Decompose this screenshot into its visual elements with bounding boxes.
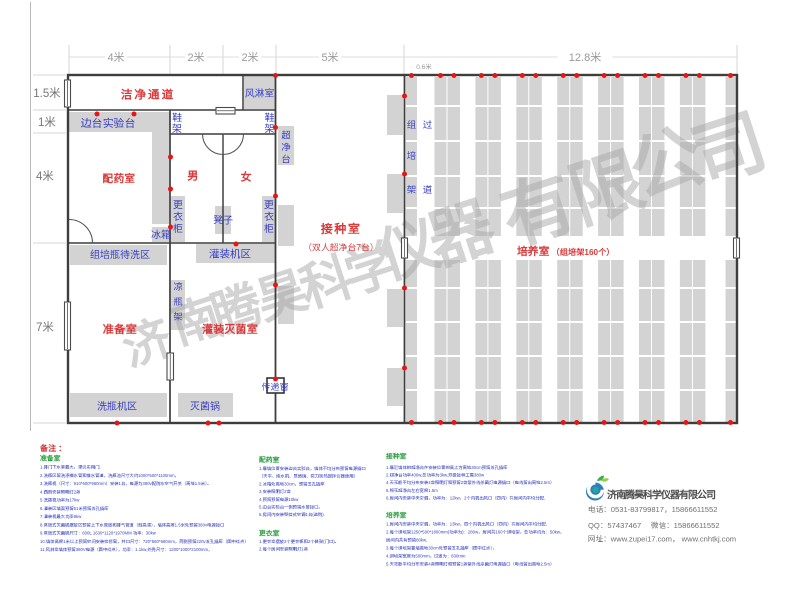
svg-text:架: 架 bbox=[265, 120, 275, 135]
svg-text:柜: 柜 bbox=[264, 220, 275, 235]
svg-text:4米: 4米 bbox=[107, 49, 124, 65]
svg-text:接种室: 接种室 bbox=[385, 451, 407, 461]
svg-text:4.天花板平均分布安装4盏照明灯和预留2盏紫外线杀菌灯电源插: 4.天花板平均分布安装4盏照明灯和预留2盏紫外线杀菌灯电源插口（电线留出离地2.… bbox=[386, 479, 554, 486]
svg-text:3.洗瓶机（尺寸：910*600*960mm）安装1台，电源: 3.洗瓶机（尺寸：910*600*960mm）安装1台，电源为380v配防水空气… bbox=[40, 481, 211, 487]
svg-text:2.每个房间安装照明灯1盏: 2.每个房间安装照明灯1盏 bbox=[259, 546, 309, 553]
svg-text:6.房间内安装壁挂式空调1台(选购).: 6.房间内安装壁挂式空调1台(选购). bbox=[259, 512, 325, 518]
svg-text:3.安装照明灯2盏: 3.安装照明灯2盏 bbox=[259, 488, 291, 495]
svg-text:柜: 柜 bbox=[173, 220, 184, 235]
svg-text:组: 组 bbox=[407, 117, 417, 131]
svg-text:培: 培 bbox=[407, 148, 417, 162]
svg-text:5.棉花超净台左右宽度1.5m: 5.棉花超净台左右宽度1.5m bbox=[386, 487, 438, 494]
svg-text:济南腾昊科学仪器有限公司: 济南腾昊科学仪器有限公司 bbox=[606, 486, 716, 501]
svg-text:配药室: 配药室 bbox=[103, 171, 136, 186]
svg-text:风淋室: 风淋室 bbox=[245, 86, 275, 100]
svg-text:网址：www.zupei17.com， www.cnhtk: 网址：www.zupei17.com， www.cnhtkj.com bbox=[588, 534, 736, 545]
svg-text:灭菌锅: 灭菌锅 bbox=[189, 398, 220, 413]
svg-text:10.墙体高度1米以上预留空间安装检修窗，井口尺寸：720*: 10.墙体高度1米以上预留空间安装检修窗，井口尺寸：720*560*680mm，… bbox=[40, 538, 249, 545]
svg-text:2米: 2米 bbox=[241, 49, 258, 65]
svg-text:2.冰箱处离地30cm，预留五孔插座: 2.冰箱处离地30cm，预留五孔插座 bbox=[259, 480, 325, 487]
svg-text:3.每个组培架靠墙离地30cm处预留五孔插座（图中红点），: 3.每个组培架靠墙离地30cm处预留五孔插座（图中红点）， bbox=[386, 544, 497, 551]
svg-text:7米: 7米 bbox=[36, 319, 54, 335]
svg-text:4.组培架宽度为500mm，过道为：600mm: 4.组培架宽度为500mm，过道为：600mm bbox=[386, 552, 466, 559]
svg-text:2.超净台功率400w,总功率为3kw,双极接种工需380w: 2.超净台功率400w,总功率为3kw,双极接种工需380w bbox=[386, 473, 485, 479]
svg-text:房间内共有预留80kw,: 房间内共有预留80kw, bbox=[385, 536, 427, 543]
svg-text:过: 过 bbox=[423, 117, 433, 131]
svg-text:洁净通道: 洁净通道 bbox=[121, 87, 176, 103]
svg-text:4米: 4米 bbox=[36, 168, 54, 184]
svg-text:4.预留预留电源10kw: 4.预留预留电源10kw bbox=[259, 497, 299, 503]
svg-text:2.每个组培架1250*500*1800mm(功率为)：28: 2.每个组培架1250*500*1800mm(功率为)：280w，房间共160个… bbox=[386, 528, 564, 535]
svg-text:2.洗瓶区留洗涤槽水管和排水管道，洗瓶池尺寸大约1000*5: 2.洗瓶区留洗涤槽水管和排水管道，洗瓶池尺寸大约1000*500*1100mm， bbox=[40, 473, 179, 479]
svg-text:11.风淋室墙体预留380V电源（图中红点），功率：1.1k: 11.风淋室墙体预留380V电源（图中红点），功率：1.1kw,外壳尺寸：120… bbox=[40, 546, 212, 553]
svg-text:灌装机区: 灌装机区 bbox=[209, 247, 251, 262]
svg-text:（天平、纯水机、显微镜、磁力加热搅拌仪器使用）: （天平、纯水机、显微镜、磁力加热搅拌仪器使用） bbox=[259, 473, 358, 480]
svg-text:5米: 5米 bbox=[321, 49, 338, 65]
svg-text:QQ：57437467 微信：15866611552: QQ：57437467 微信：15866611552 bbox=[588, 520, 720, 531]
svg-text:培养室 （组培架160个）: 培养室 （组培架160个） bbox=[517, 243, 614, 259]
svg-text:台: 台 bbox=[281, 152, 291, 166]
svg-text:培养室: 培养室 bbox=[385, 510, 407, 520]
svg-text:5.边台实验台一侧预留水管接口。: 5.边台实验台一侧预留水管接口。 bbox=[259, 505, 323, 511]
svg-text:冰箱: 冰箱 bbox=[151, 226, 171, 241]
svg-text:配药室: 配药室 bbox=[259, 454, 280, 464]
svg-text:接种室: 接种室 bbox=[321, 220, 362, 237]
svg-text:准备室: 准备室 bbox=[39, 453, 61, 463]
svg-text:准备室: 准备室 bbox=[103, 321, 138, 337]
svg-text:女: 女 bbox=[241, 169, 252, 185]
svg-text:7.灌装机最大功率9kw: 7.灌装机最大功率9kw bbox=[40, 514, 82, 520]
svg-text:架: 架 bbox=[407, 182, 417, 196]
svg-text:9.蒸饭式灭菌锅尺寸：600L 1630*1120*1970: 9.蒸饭式灭菌锅尺寸：600L 1630*1120*1970MM 功率：30kw bbox=[40, 531, 157, 537]
svg-text:1.靠墙位置安装边台实验台，墙体不均分布预留电源插口: 1.靠墙位置安装边台实验台，墙体不均分布预留电源插口 bbox=[259, 465, 366, 472]
svg-text:架: 架 bbox=[173, 309, 183, 323]
svg-text:2米: 2米 bbox=[187, 49, 204, 65]
svg-text:传递窗: 传递窗 bbox=[260, 380, 288, 393]
svg-text:凳子: 凳子 bbox=[213, 212, 233, 227]
svg-text:1.房间内安装中央空调，功率为：13kw，四个内机出风口（四: 1.房间内安装中央空调，功率为：13kw，四个内机出风口（四内）在房间内平均分配… bbox=[386, 520, 547, 527]
svg-text:6.灌装区墙面预留61米预留五孔插座: 6.灌装区墙面预留61米预留五孔插座 bbox=[40, 505, 109, 512]
svg-text:组培瓶待洗区: 组培瓶待洗区 bbox=[90, 246, 150, 261]
svg-text:12.8米: 12.8米 bbox=[569, 49, 601, 65]
svg-text:1.更衣室摆放2个更衣柜和2个鞋架(门口)。: 1.更衣室摆放2个更衣柜和2个鞋架(门口)。 bbox=[259, 538, 339, 545]
svg-text:1米: 1米 bbox=[38, 114, 56, 130]
svg-text:5.天花板平均分布安装4盏照明灯和预留1盏紫外线杀菌灯电源插: 5.天花板平均分布安装4盏照明灯和预留1盏紫外线杀菌灯电源插口（电线留出离地2.… bbox=[386, 560, 554, 567]
svg-text:（双人超净台7台）: （双人超净台7台） bbox=[303, 241, 378, 254]
svg-text:男: 男 bbox=[187, 168, 198, 184]
svg-text:0.6米: 0.6米 bbox=[416, 61, 432, 71]
svg-text:灌装灭菌室: 灌装灭菌室 bbox=[202, 321, 259, 337]
svg-text:更衣室: 更衣室 bbox=[258, 528, 280, 538]
svg-text:5.洗瓶机功率为17kw: 5.洗瓶机功率为17kw bbox=[40, 498, 80, 504]
svg-text:边台实验台: 边台实验台 bbox=[81, 115, 136, 131]
svg-text:1.5米: 1.5米 bbox=[33, 85, 61, 101]
svg-text:瓶: 瓶 bbox=[173, 294, 183, 308]
svg-text:凉: 凉 bbox=[173, 279, 183, 293]
svg-text:4.西侧安装照明灯2盏: 4.西侧安装照明灯2盏 bbox=[40, 488, 81, 495]
svg-text:8.蒸饭式灭菌锅摆放区预留上下水管道和排气管道（耐高温），墙: 8.蒸饭式灭菌锅摆放区预留上下水管道和排气管道（耐高温），墙体高度1.5米处预留… bbox=[40, 521, 224, 528]
svg-text:1.靠近墙体的超净台在安装位置的高上方离地30cm预留五孔插: 1.靠近墙体的超净台在安装位置的高上方离地30cm预留五孔插座 bbox=[386, 464, 508, 471]
svg-text:6.房间内安装中央空调，功率为：12kw，2个内机出风口（四: 6.房间内安装中央空调，功率为：12kw，2个内机出风口（四内）在房间内平均分配… bbox=[386, 494, 545, 501]
svg-text:洗瓶机区: 洗瓶机区 bbox=[97, 398, 137, 413]
svg-text:架: 架 bbox=[172, 120, 182, 135]
svg-text:电话：0531-83799817，15866611552: 电话：0531-83799817，15866611552 bbox=[588, 504, 717, 515]
svg-text:道: 道 bbox=[423, 182, 433, 196]
svg-text:1.排门下水量最大，建议实用门.: 1.排门下水量最大，建议实用门. bbox=[40, 465, 101, 471]
